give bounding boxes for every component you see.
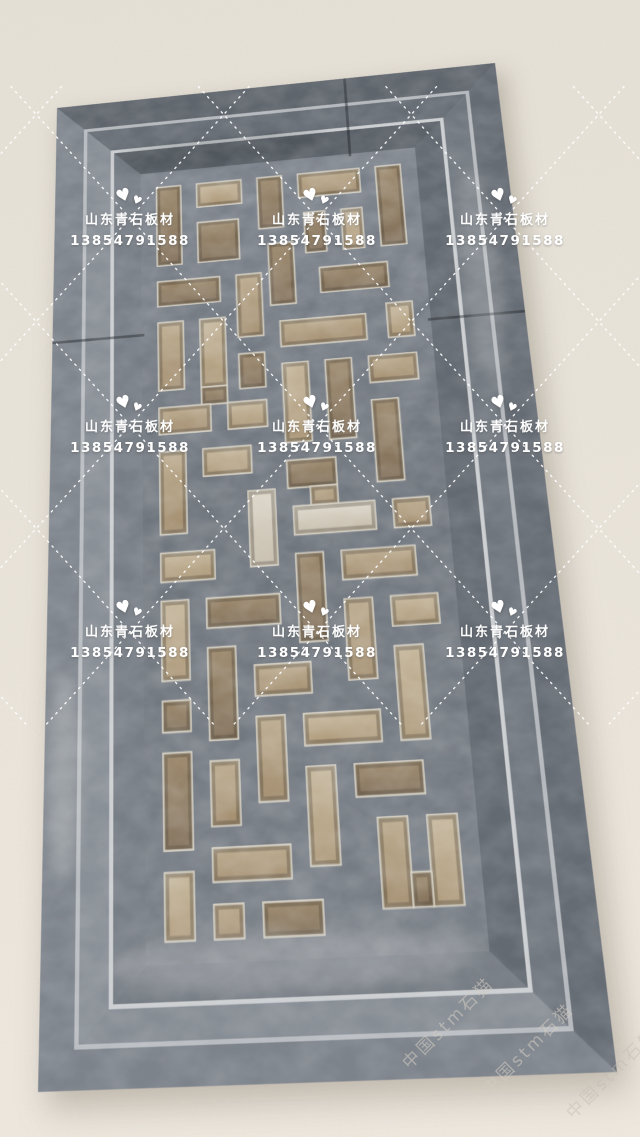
stone-window — [38, 63, 617, 1092]
photo-of-stone-lattice-window: { "watermark": { "logo_icon": "double-he… — [0, 0, 640, 1137]
